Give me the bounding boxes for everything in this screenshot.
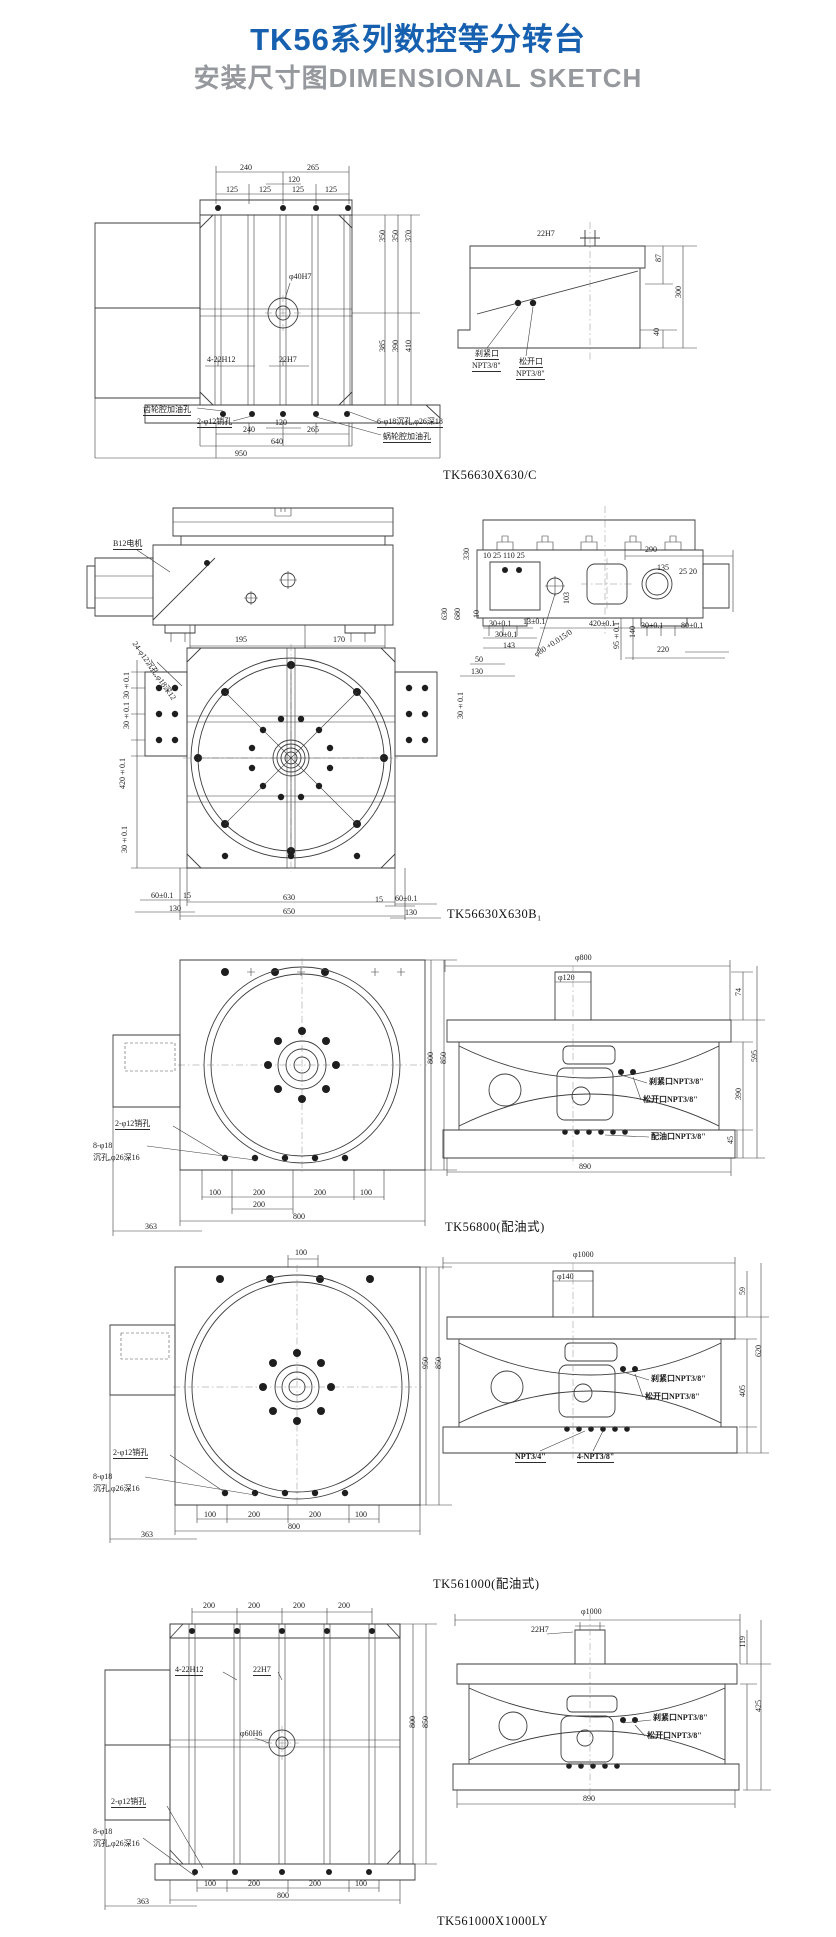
dim-label: 95±0.1 [613, 622, 621, 649]
dim-label: 30±0.1 [123, 672, 131, 699]
dim-label: 100 [360, 1189, 372, 1197]
page-title: TK56系列数控等分转台 [0, 14, 836, 59]
counterbore-label: 沉孔,φ26深16 [93, 1485, 140, 1493]
dim-label: φ800 [575, 954, 592, 962]
dim-label: 30±0.1 [121, 826, 129, 853]
page-subtitle: 安装尺寸图DIMENSIONAL SKETCH [0, 58, 836, 95]
dim-label: 200 [293, 1602, 305, 1610]
dim-label: 240 [240, 164, 252, 172]
dim-label: 100 [355, 1880, 367, 1888]
dim-label: 30±0.1 [489, 620, 511, 628]
dim-label: 30±0.1 [641, 622, 663, 630]
dim-label: 25 20 [679, 568, 697, 576]
dim-label: 265 [307, 426, 319, 434]
figure-tk561000x1000ly: 200 200 200 200 4-22H12 22H7 φ60H6 2-φ12… [85, 1600, 785, 1937]
dim-label: 140 [629, 626, 637, 638]
dim-label: 100 [355, 1511, 367, 1519]
dim-label: 363 [141, 1531, 153, 1539]
fig5-linework [85, 1600, 785, 1937]
release-port-label: 松开口NPT3/8" [645, 1393, 700, 1401]
dim-label: 125 [325, 186, 337, 194]
bore-label: φ140 [557, 1273, 574, 1281]
dim-label: 800 [409, 1716, 417, 1728]
brake-port-label: NPT3/8" [472, 362, 501, 372]
dim-label: 15 [183, 892, 191, 900]
dim-label: 87 [655, 254, 663, 262]
bore-label: φ60H6 [240, 1730, 262, 1738]
figure-tk56630x630b1: B12电机 195 170 24-φ12沉孔,φ18深12 330 10 25 … [85, 500, 785, 930]
dim-label: 195 [235, 636, 247, 644]
dim-label: 200 [253, 1189, 265, 1197]
pin-hole-label: 2-φ12销孔 [197, 418, 232, 428]
dim-label: φ1000 [581, 1608, 602, 1616]
dim-label: 363 [137, 1898, 149, 1906]
dim-label: 850 [422, 1716, 430, 1728]
counterbore-label: 8-φ18 [93, 1473, 112, 1481]
dim-label: 40 [653, 328, 661, 336]
dim-label: 200 [314, 1189, 326, 1197]
dim-label: 405 [739, 1385, 747, 1397]
dim-label: 125 [259, 186, 271, 194]
figure-caption: TK56630X630B₁ [447, 907, 542, 922]
dim-label: 200 [248, 1602, 260, 1610]
figure-caption: TK561000X1000LY [437, 1914, 548, 1929]
slot-label: 22H7 [253, 1666, 271, 1676]
dim-label: 135 [657, 564, 669, 572]
dim-label: 410 [405, 340, 413, 352]
brake-port-label: 刹紧口NPT3/8" [651, 1375, 706, 1383]
dim-label: 80±0.1 [681, 622, 703, 630]
dim-label: 45 [727, 1136, 735, 1144]
dim-label: 390 [735, 1088, 743, 1100]
dim-label: 890 [583, 1795, 595, 1803]
dim-label: 74 [735, 988, 743, 996]
slot-label: 22H7 [531, 1626, 549, 1634]
dim-label: 30±0.1 [495, 631, 517, 639]
dim-label: 370 [405, 230, 413, 242]
dim-label: 300 [675, 286, 683, 298]
release-port-label: 松开口NPT3/8" [643, 1096, 698, 1104]
dim-label: 350 [379, 230, 387, 242]
oil-port-label: NPT3/4" [515, 1453, 546, 1463]
dim-label: φ1000 [573, 1251, 594, 1259]
dim-label: 125 [226, 186, 238, 194]
dim-label: 15 [375, 896, 383, 904]
dim-label: 143 [503, 642, 515, 650]
release-port-label: 松开口NPT3/8" [647, 1732, 702, 1740]
figure-caption: TK56630X630/C [443, 468, 537, 483]
dim-label: 630 [283, 894, 295, 902]
dim-label: 30±0.1 [457, 692, 465, 719]
slot-label: 22H7 [537, 230, 555, 238]
dim-label: 200 [338, 1602, 350, 1610]
figure-caption: TK561000(配油式) [433, 1573, 540, 1592]
dim-label: 120 [275, 419, 287, 427]
dim-label: 800 [277, 1892, 289, 1900]
dim-label: 200 [203, 1602, 215, 1610]
dim-label: 200 [253, 1201, 265, 1209]
dim-label: 200 [248, 1880, 260, 1888]
release-port-label: NPT3/8" [516, 370, 545, 380]
drawing-sheet: { "header": { "title": "TK56系列数控等分转台", "… [0, 0, 836, 1937]
dim-label: 950 [235, 450, 247, 458]
counterbore-label: 沉孔,φ26深16 [93, 1840, 140, 1848]
counterbore-label: 6-φ18沉孔,φ26深18 [377, 418, 443, 428]
dim-label: 595 [751, 1050, 759, 1062]
dim-label: 350 [392, 230, 400, 242]
brake-port-label: 刹紧口NPT3/8" [649, 1078, 704, 1086]
figure-tk561000: 100 φ1000 φ140 59 620 405 刹紧口NPT3/8" 松开口… [85, 1245, 785, 1595]
dim-label: 290 [645, 546, 657, 554]
dim-label: 10 [473, 610, 481, 618]
figure-tk56800: φ800 φ120 74 595 390 45 890 刹紧口NPT3/8" 松… [85, 950, 785, 1245]
pin-hole-label: 2-φ12销孔 [113, 1449, 148, 1459]
counterbore-label: 8-φ18 [93, 1828, 112, 1836]
dim-label: 125 [292, 186, 304, 194]
dim-label: 170 [333, 636, 345, 644]
fig1-linework [85, 118, 785, 490]
slot-label: 4-22H12 [175, 1666, 203, 1676]
dim-label: 800 [293, 1213, 305, 1221]
pin-hole-label: 2-φ12销孔 [111, 1798, 146, 1808]
dim-label: 640 [271, 438, 283, 446]
bore-label: φ40H7 [289, 273, 311, 281]
dim-label: 890 [579, 1163, 591, 1171]
dim-label: 265 [307, 164, 319, 172]
dim-label: 200 [309, 1511, 321, 1519]
oil-hole-label: 齿轮腔加油孔 [143, 406, 191, 416]
figure-caption: TK56800(配油式) [445, 1216, 545, 1235]
dim-label: 100 [204, 1880, 216, 1888]
release-port-label: 松开口 [519, 358, 543, 368]
fig4-linework [85, 1245, 785, 1595]
dim-label: 420±0.1 [119, 758, 127, 789]
dim-label: 103 [563, 592, 571, 604]
dim-label: 60±0.1 [151, 892, 173, 900]
dim-label: 800 [427, 1052, 435, 1064]
bore-label: φ120 [558, 974, 575, 982]
dim-label: 13±0.1 [523, 618, 545, 626]
dim-label: 650 [283, 908, 295, 916]
dim-label: 800 [288, 1523, 300, 1531]
dim-label: 200 [248, 1511, 260, 1519]
dim-label: 680 [454, 608, 462, 620]
dim-label: 620 [755, 1345, 763, 1357]
slot-label: 4-22H12 [207, 356, 235, 364]
dim-label: 425 [755, 1700, 763, 1712]
dim-label: 120 [288, 176, 300, 184]
dim-label: 220 [657, 646, 669, 654]
dim-label: 330 [463, 548, 471, 560]
fig2-linework [85, 500, 785, 930]
dim-label: 385 [379, 340, 387, 352]
dim-label: 850 [435, 1357, 443, 1369]
brake-port-label: 刹紧口 [475, 350, 499, 360]
oil-port-label: 4-NPT3/8" [577, 1453, 614, 1463]
dim-label: 60±0.1 [395, 895, 417, 903]
dim-label: 240 [243, 426, 255, 434]
counterbore-label: 8-φ18 [93, 1142, 112, 1150]
dim-label: 119 [739, 1636, 747, 1648]
dim-label: 130 [471, 668, 483, 676]
dim-label: 390 [392, 340, 400, 352]
dim-label: 100 [295, 1249, 307, 1257]
dim-label: 200 [309, 1880, 321, 1888]
dim-label: 130 [169, 905, 181, 913]
dim-label: 10 25 110 25 [483, 552, 525, 560]
oil-port-label: 配油口NPT3/8" [651, 1133, 706, 1141]
dim-label: 50 [475, 656, 483, 664]
dim-label: 950 [422, 1357, 430, 1369]
pin-hole-label: 2-φ12销孔 [115, 1120, 150, 1130]
dim-label: 130 [405, 909, 417, 917]
dim-label: 30±0.1 [123, 702, 131, 729]
dim-label: 100 [209, 1189, 221, 1197]
dim-label: 59 [739, 1287, 747, 1295]
counterbore-label: 沉孔,φ26深16 [93, 1154, 140, 1162]
motor-label: B12电机 [113, 540, 142, 550]
oil-hole-label: 蜗轮腔加油孔 [383, 433, 431, 443]
figure-tk56630x630c: 240 265 120 125 125 125 125 φ40H7 4-22H1… [85, 118, 785, 490]
dim-label: 363 [145, 1223, 157, 1231]
dim-label: 850 [440, 1052, 448, 1064]
dim-label: 100 [204, 1511, 216, 1519]
brake-port-label: 刹紧口NPT3/8" [653, 1714, 708, 1722]
dim-label: 630 [441, 608, 449, 620]
slot-label: 22H7 [279, 356, 297, 364]
